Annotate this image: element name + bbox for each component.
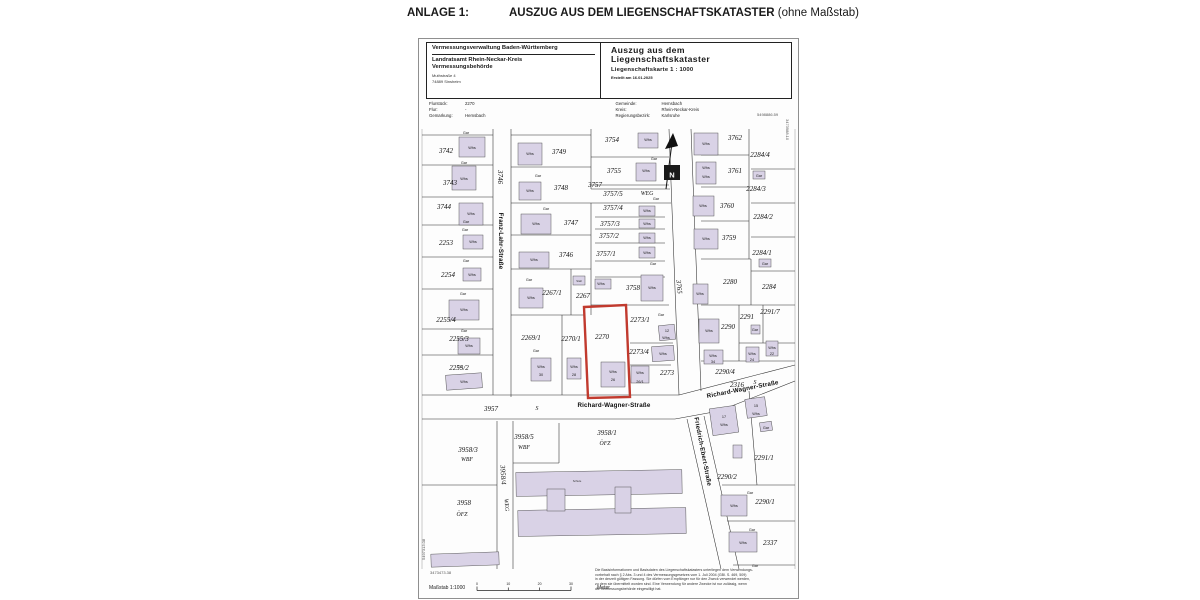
building-footprint: [733, 445, 742, 458]
building-label: Whs: [696, 292, 704, 296]
parcel-label: 3755: [606, 167, 622, 175]
regbez-value: Karlsruhe: [662, 113, 700, 119]
building-label: Gar: [756, 174, 763, 178]
street-label: Franz-Lahr-Straße: [497, 213, 504, 270]
building-footprint: [601, 362, 625, 387]
parcel-label: 3757/3: [599, 220, 620, 228]
parcel-label: 2280: [723, 278, 738, 286]
building-label: Whs: [709, 354, 717, 358]
parcel-label: 3746: [496, 169, 504, 185]
parcel-label: 3757/2: [598, 232, 619, 240]
parcel-label: 2290/4: [715, 368, 735, 376]
parcel-label: 2337: [763, 539, 778, 547]
building-label: 28: [572, 373, 576, 377]
parcel-label: WBF: [518, 445, 530, 451]
parcel-label: 3957: [483, 405, 499, 413]
svg-text:0: 0: [476, 582, 478, 586]
parcel-label: 2269/1: [521, 334, 540, 342]
building-label: Stall: [576, 279, 582, 283]
building-label: 12: [665, 329, 669, 333]
header-authority-cell: Vermessungsverwaltung Baden-Württemberg …: [427, 43, 601, 98]
meta-right-group: Gemeinde:Hemsbach Kreis:Rhein-Neckar-Kre…: [616, 101, 700, 119]
building-label: Whs: [702, 175, 710, 179]
cadastral-map: 374237433744225322542255/42255/32255/237…: [419, 129, 798, 569]
building-label: 15: [754, 404, 758, 408]
building-label: Whs: [768, 346, 776, 350]
parcel-label: 3757/4: [602, 204, 623, 212]
parcel-label: 3744: [436, 203, 452, 211]
building-label: Whs: [465, 344, 473, 348]
building-footprint: [431, 552, 499, 567]
page-title: AUSZUG AUS DEM LIEGENSCHAFTSKATASTER (oh…: [509, 7, 859, 19]
building-footprint: [615, 487, 631, 513]
parcel-label: 2273/1: [630, 316, 649, 324]
building-label: Whs: [469, 240, 477, 244]
document-title: Auszug aus dem Liegenschaftskataster: [611, 46, 791, 65]
parcel-label: 3958/5: [513, 433, 534, 441]
parcel-label: 3757: [587, 181, 603, 189]
building-label: Whs: [643, 209, 651, 213]
parcel-label: 2284: [762, 283, 777, 291]
header-title-cell: Auszug aus dem Liegenschaftskataster Lie…: [601, 43, 791, 98]
building-label: Whs: [636, 371, 644, 375]
building-label: 17: [722, 415, 726, 419]
parcel-label: 3757/5: [602, 190, 623, 198]
parcel-label: WBF: [461, 457, 473, 463]
building-label: Whs: [537, 365, 545, 369]
building-label: Whs: [609, 370, 617, 374]
building-label: Whs: [702, 142, 710, 146]
building-label: Whs: [468, 146, 476, 150]
parcel-label: 2273/4: [629, 348, 649, 356]
building-label: Gar: [461, 161, 468, 165]
svg-text:20: 20: [538, 582, 542, 586]
building-label: Whs: [648, 286, 656, 290]
building-label: 30: [539, 373, 543, 377]
building-label: Gar: [752, 328, 759, 332]
building-label: Gar: [658, 313, 665, 317]
building-label: Gar: [462, 228, 469, 232]
building-label: Whs: [460, 177, 468, 181]
office-address: Muthstraße 4 74889 Sinsheim: [432, 73, 595, 83]
parcel-label: 3758: [625, 284, 641, 292]
parcel-label: 3748: [553, 184, 569, 192]
building-label: Gar: [463, 220, 470, 224]
building-label: Gar: [653, 197, 660, 201]
building-label: Whs: [705, 329, 713, 333]
parcel-label: 2291/7: [760, 308, 780, 316]
disclaimer-line: die Vermessungsbehörde eingewilligt hat.: [595, 587, 793, 592]
building-label: Whs: [570, 365, 578, 369]
document-header-box: Vermessungsverwaltung Baden-Württemberg …: [426, 42, 792, 99]
gemarkung-value: Hemsbach: [465, 113, 486, 119]
building-label: Whs: [460, 308, 468, 312]
svg-text:10: 10: [506, 582, 510, 586]
office-line1: Landratsamt Rhein-Neckar-Kreis: [432, 57, 595, 64]
building-label: Whs: [730, 504, 738, 508]
building-label: Whs: [532, 222, 540, 226]
parcel-label: 2284/3: [746, 185, 766, 193]
scale-bar-row: Maßstab 1:1000 0 10 20 30 Meter: [429, 581, 610, 594]
scale-bar: 0 10 20 30: [473, 581, 589, 594]
building-footprint: [516, 470, 682, 497]
building-label: Whs: [643, 251, 651, 255]
parcel-label: 2291/1: [754, 454, 773, 462]
parcel-label: ÖFZ: [600, 439, 612, 447]
document-subtitle: Liegenschaftskarte 1 : 1000: [611, 67, 791, 73]
parcel-label: 3761: [727, 167, 742, 175]
parcel-label: 3742: [438, 147, 454, 155]
building-label: 24: [750, 358, 754, 362]
building-label: Whs: [468, 273, 476, 277]
building-label: Gar: [526, 278, 533, 282]
parcel-label: 2255/4: [436, 316, 456, 324]
building-label: Whs: [460, 380, 468, 384]
office-line2: Vermessungsbehörde: [432, 64, 595, 71]
building-label: Whs: [467, 212, 475, 216]
building-label: Whs: [526, 189, 534, 193]
building-label: Whs: [659, 352, 667, 356]
building-label: Whs: [643, 236, 651, 240]
building-label: 34: [711, 360, 715, 364]
building-label: Gar: [543, 207, 550, 211]
building-label: Whs: [720, 423, 728, 427]
parcel-label: 3760: [719, 202, 735, 210]
building-label: Whs: [642, 169, 650, 173]
building-label: Whs: [702, 166, 710, 170]
parcel-label: 2290/2: [717, 473, 737, 481]
building-label: Whs: [530, 258, 538, 262]
building-label: Gar: [457, 365, 464, 369]
building-label: Whs: [699, 204, 707, 208]
parcel-label: 2284/1: [752, 249, 771, 257]
corner-coordinate-bottom-left: 3473473.38: [430, 570, 451, 575]
parcel-label: 2290/1: [755, 498, 774, 506]
parcel-label: 2291: [740, 313, 754, 321]
parcel-label: 2267: [576, 292, 591, 300]
page-title-bar: ANLAGE 1: AUSZUG AUS DEM LIEGENSCHAFTSKA…: [407, 7, 859, 19]
parcel-label: 2270/1: [561, 335, 580, 343]
created-date: Erstellt am 16.01.2025: [611, 75, 791, 80]
parcel-label: N: [669, 171, 674, 180]
building-footprint: [547, 489, 565, 511]
building-label: Gar: [763, 426, 770, 430]
building-label: 26/1: [636, 380, 643, 384]
svg-text:30: 30: [569, 582, 573, 586]
anlage-label: ANLAGE 1:: [407, 7, 469, 19]
parcel-label: 2284/2: [753, 213, 773, 221]
building-label: Schule: [573, 479, 582, 483]
building-label: Whs: [662, 336, 670, 340]
parcel-label: 2255/3: [449, 335, 469, 343]
parcel-label: 2254: [441, 271, 456, 279]
parcel-label: 2270: [595, 333, 610, 341]
building-label: Whs: [526, 152, 534, 156]
building-label: Whs: [739, 541, 747, 545]
building-label: Whs: [702, 237, 710, 241]
building-label: Whs: [748, 352, 756, 356]
parcel-label: 2284/4: [750, 151, 770, 159]
building-label: 26: [611, 378, 615, 382]
building-label: Gar: [749, 528, 756, 532]
parcel-label: S: [536, 406, 539, 412]
building-label: Gar: [533, 349, 540, 353]
building-label: Gar: [762, 262, 769, 266]
scale-label: Maßstab 1:1000: [429, 585, 465, 591]
parcel-label: 2290: [721, 323, 736, 331]
legal-disclaimer: Die Basisinformationen und Basisdaten de…: [595, 568, 793, 591]
parcel-label: 3958/4: [498, 464, 507, 485]
parcel-label: 3958: [456, 499, 472, 507]
street-label: Friedrich-Ebert-Straße: [692, 417, 712, 487]
building-label: Whs: [527, 296, 535, 300]
parcel-label: 2267/1: [542, 289, 561, 297]
building-label: Gar: [747, 491, 754, 495]
parcel-label: 3747: [563, 219, 579, 227]
parcel-label: 3759: [721, 234, 737, 242]
screenshot-root: { "page": { "anlage_label": "ANLAGE 1:",…: [0, 0, 1200, 600]
parcel-label: 3757/1: [595, 250, 615, 258]
parcel-label: 3958/1: [596, 429, 616, 437]
building-footprint: [531, 358, 551, 381]
north-arrow-icon: [664, 133, 680, 189]
parcel-label: ÖFZ: [457, 510, 469, 518]
parcel-meta-row: Flurstück:2270 Flur:- Gemarkung:Hemsbach…: [429, 101, 699, 119]
building-footprint: [709, 405, 739, 435]
building-label: Gar: [463, 259, 470, 263]
building-label: Gar: [650, 262, 657, 266]
building-label: Whs: [597, 282, 605, 286]
parcel-label: 2253: [439, 239, 454, 247]
street-label: Richard-Wagner-Straße: [577, 402, 650, 409]
building-label: Gar: [535, 174, 542, 178]
building-label: Gar: [463, 131, 470, 135]
parcel-label: 3746: [558, 251, 574, 259]
parcel-label: 3765: [674, 278, 684, 294]
parcel-label: 3958/3: [457, 446, 478, 454]
building-footprint: [518, 508, 686, 537]
corner-coordinate-bottom-left-vertical: 5497313.08: [421, 539, 426, 560]
building-label: Gar: [651, 157, 658, 161]
parcel-label: 3743: [442, 179, 458, 187]
parcel-label: 3754: [604, 136, 620, 144]
authority-name: Vermessungsverwaltung Baden-Württemberg: [432, 45, 595, 55]
parcel-label: 2273: [660, 369, 675, 377]
building-label: Whs: [643, 222, 651, 226]
corner-coordinate-top-right: 5498886.59: [757, 112, 778, 117]
parcel-label: 3762: [727, 134, 743, 142]
parcel-label: WEG: [503, 498, 510, 512]
building-label: Whs: [644, 138, 652, 142]
building-label: Whs: [752, 412, 760, 416]
building-label: Gar: [461, 329, 468, 333]
building-label: Gar: [460, 292, 467, 296]
meta-left-group: Flurstück:2270 Flur:- Gemarkung:Hemsbach: [429, 101, 486, 119]
building-label: 22: [770, 352, 774, 356]
document-sheet: Vermessungsverwaltung Baden-Württemberg …: [418, 38, 799, 599]
parcel-label: 3749: [551, 148, 567, 156]
